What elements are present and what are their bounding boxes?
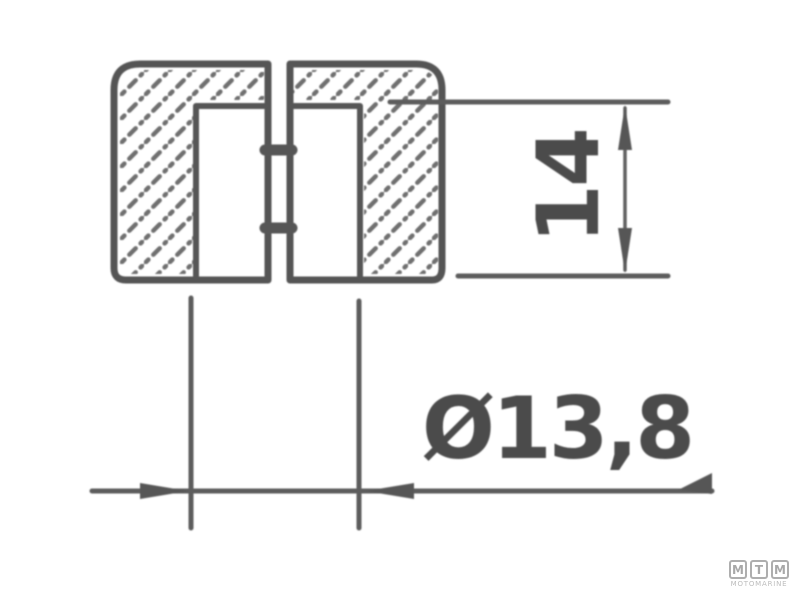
logo-letter-boxes: M T M: [724, 560, 794, 579]
left-half-hatch: [120, 70, 264, 274]
logo-letter: M: [774, 564, 786, 576]
logo-subtitle: MOTOMARINE: [724, 580, 794, 588]
diameter-dimension-label: Ø13,8: [422, 379, 692, 479]
motomarine-logo: M T M MOTOMARINE: [724, 560, 794, 588]
arrowhead-down: [618, 228, 632, 273]
arrowhead-right: [140, 483, 188, 499]
logo-letter: T: [755, 564, 763, 576]
arrowhead-left: [366, 483, 414, 499]
part-cross-section: [114, 64, 442, 280]
scanned-technical-drawing: 14 Ø13,8 M T M: [0, 0, 800, 600]
diameter-dimension: Ø13,8: [92, 298, 712, 528]
left-bore-edge: [196, 106, 265, 277]
height-dimension-label: 14: [519, 130, 619, 244]
logo-letter-box: M: [771, 560, 789, 579]
arrowhead-up: [618, 105, 632, 150]
logo-letter-box: T: [750, 560, 768, 579]
right-bore-edge: [292, 106, 360, 277]
drawing-canvas: 14 Ø13,8: [0, 0, 800, 600]
logo-letter: M: [732, 564, 744, 576]
logo-letter-box: M: [729, 560, 747, 579]
